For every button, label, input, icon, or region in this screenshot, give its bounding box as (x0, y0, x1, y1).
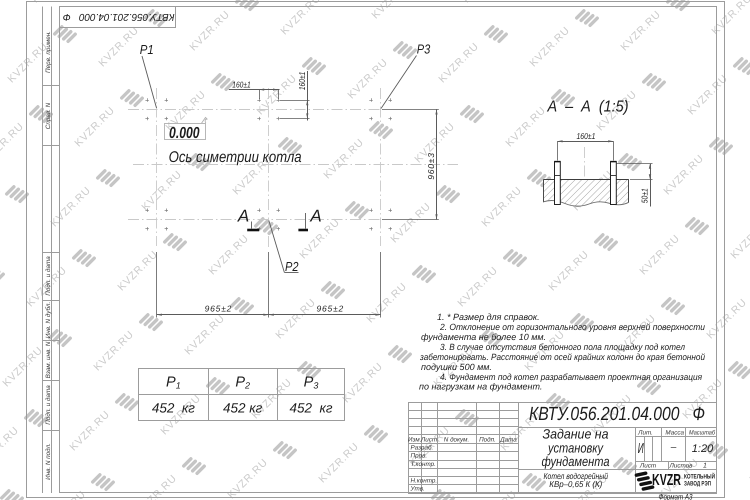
svg-text:Подп. и дата: Подп. и дата (45, 385, 52, 425)
svg-text:Изм.: Изм. (408, 437, 421, 444)
svg-text:КОТЕЛЬНЫЙ: КОТЕЛЬНЫЙ (684, 473, 715, 481)
svg-text:Т.контр.: Т.контр. (411, 461, 436, 468)
svg-text:А – А (1:5): А – А (1:5) (547, 99, 629, 116)
svg-text:Масштаб: Масштаб (689, 430, 715, 437)
svg-text:P3: P3 (304, 375, 319, 391)
svg-text:1:20: 1:20 (692, 443, 714, 455)
svg-text:Формат А3: Формат А3 (659, 492, 693, 500)
svg-text:фундамента: фундамента (542, 454, 610, 469)
svg-text:KVZR.RU: KVZR.RU (206, 232, 251, 277)
svg-text:KVZR.RU: KVZR.RU (728, 216, 750, 261)
svg-text:Масса: Масса (665, 430, 684, 437)
svg-text:KVZR.RU: KVZR.RU (5, 40, 50, 85)
svg-text:160±1: 160±1 (577, 131, 596, 141)
svg-text:KVZR.RU: KVZR.RU (91, 328, 136, 373)
svg-text:P1: P1 (140, 42, 154, 57)
svg-text:KVZR.RU: KVZR.RU (455, 264, 500, 309)
svg-text:по нагрузкам на фундамент.: по нагрузкам на фундамент. (419, 382, 542, 392)
svg-text:Лит.: Лит. (637, 430, 653, 437)
svg-text:Инв. N подл.: Инв. N подл. (45, 443, 52, 480)
svg-text:Листов: Листов (669, 463, 694, 470)
svg-text:N докум.: N докум. (444, 437, 469, 444)
svg-text:KVZR.RU: KVZR.RU (685, 72, 730, 117)
svg-text:4. Фундамент под котел разраба: 4. Фундамент под котел разрабатывает про… (440, 372, 702, 382)
svg-text:3. В случае отсутствия бетонно: 3. В случае отсутствия бетонного пола пл… (440, 342, 685, 352)
svg-text:KVZR.RU: KVZR.RU (254, 72, 299, 117)
svg-text:KVZR.RU: KVZR.RU (388, 200, 433, 245)
svg-text:Подп.: Подп. (479, 437, 496, 444)
svg-text:KVZR.RU: KVZR.RU (637, 232, 682, 277)
svg-text:KVZR.RU: KVZR.RU (527, 24, 572, 69)
svg-text:A: A (309, 206, 321, 225)
svg-text:965±2: 965±2 (317, 303, 345, 313)
svg-text:KVZR.RU: KVZR.RU (278, 0, 323, 37)
svg-text:Разраб.: Разраб. (411, 445, 434, 452)
svg-text:960±3: 960±3 (426, 152, 436, 180)
svg-text:Лист: Лист (420, 437, 437, 444)
svg-text:KVZR.RU: KVZR.RU (474, 488, 519, 500)
svg-text:Дата: Дата (499, 437, 517, 444)
svg-text:KVZR.RU: KVZR.RU (115, 248, 160, 293)
svg-text:KVZR.RU: KVZR.RU (340, 360, 385, 405)
svg-text:KVZR.RU: KVZR.RU (225, 456, 270, 500)
svg-text:452 кг: 452 кг (289, 401, 332, 416)
svg-text:160±1: 160±1 (297, 71, 307, 90)
svg-text:KVZR.RU: KVZR.RU (364, 280, 409, 325)
svg-text:Справ. N: Справ. N (45, 102, 52, 129)
svg-text:P2: P2 (235, 375, 250, 391)
svg-text:KVZR.RU: KVZR.RU (618, 8, 663, 53)
svg-text:KVZR.RU: KVZR.RU (139, 168, 184, 213)
svg-text:Задание на: Задание на (543, 427, 609, 442)
svg-text:2. Отклонение от горизонтально: 2. Отклонение от горизонтального уровня … (439, 322, 705, 332)
svg-text:KVZR.RU: KVZR.RU (43, 488, 88, 500)
svg-text:KVZR: KVZR (652, 472, 681, 489)
svg-text:KVZR.RU: KVZR.RU (29, 0, 74, 5)
svg-text:Подп. и дата: Подп. и дата (45, 256, 52, 296)
svg-text:1. * Размер для справок.: 1. * Размер для справок. (437, 312, 540, 322)
svg-text:KVZR.RU: KVZR.RU (187, 8, 232, 53)
svg-text:1: 1 (703, 463, 707, 470)
svg-text:A: A (237, 206, 249, 225)
svg-text:KVZR.RU: KVZR.RU (273, 296, 318, 341)
svg-text:KVZR.RU: KVZR.RU (709, 0, 750, 37)
svg-text:ЗАВОД РЭП: ЗАВОД РЭП (684, 481, 711, 488)
svg-text:Ось симетрии котла: Ось симетрии котла (169, 149, 302, 166)
svg-text:KVZR.RU: KVZR.RU (460, 0, 505, 5)
svg-text:KVZR.RU: KVZR.RU (72, 104, 117, 149)
svg-text:КВТУ.056.201.04.000 Ф: КВТУ.056.201.04.000 Ф (63, 11, 175, 22)
svg-text:Инв. N дубл.: Инв. N дубл. (45, 302, 52, 338)
svg-text:–: – (670, 442, 677, 453)
svg-text:фундамента не более 10 мм.: фундамента не более 10 мм. (421, 332, 546, 342)
svg-text:KVZR.RU: KVZR.RU (0, 120, 26, 165)
svg-text:KVZR.RU: KVZR.RU (369, 0, 414, 21)
svg-text:KVZR.RU: KVZR.RU (345, 56, 390, 101)
svg-text:Н.контр.: Н.контр. (411, 478, 438, 485)
svg-text:452 кг: 452 кг (223, 401, 263, 416)
svg-text:P2: P2 (285, 259, 299, 274)
svg-text:KVZR.RU: KVZR.RU (96, 24, 141, 69)
svg-text:KVZR.RU: KVZR.RU (0, 344, 45, 389)
svg-text:KVZR.RU: KVZR.RU (546, 248, 591, 293)
svg-text:P3: P3 (417, 42, 431, 57)
svg-text:452 кг: 452 кг (152, 401, 195, 416)
svg-text:KVZR.RU: KVZR.RU (67, 408, 112, 453)
svg-text:50±1: 50±1 (640, 188, 650, 203)
svg-text:Лист: Лист (639, 463, 656, 470)
svg-text:0.000: 0.000 (169, 125, 200, 142)
svg-text:Перв. примен.: Перв. примен. (45, 31, 52, 73)
svg-text:Взам. инв. N: Взам. инв. N (45, 341, 52, 378)
svg-text:KVZR.RU: KVZR.RU (0, 200, 2, 245)
svg-text:KVZR.RU: KVZR.RU (316, 440, 361, 485)
svg-text:КВр–0,65 К (К): КВр–0,65 К (К) (549, 479, 602, 489)
svg-text:подушки 500 мм.: подушки 500 мм. (421, 362, 492, 372)
svg-text:KVZR.RU: KVZR.RU (503, 104, 548, 149)
svg-text:965±2: 965±2 (205, 303, 233, 313)
svg-text:KVZR.RU: KVZR.RU (134, 472, 179, 500)
svg-text:KVZR.RU: KVZR.RU (704, 296, 749, 341)
svg-text:KVZR.RU: KVZR.RU (0, 424, 21, 469)
svg-text:KVZR.RU: KVZR.RU (436, 40, 481, 85)
svg-text:КВТУ.056.201.04.000 Ф: КВТУ.056.201.04.000 Ф (529, 404, 705, 425)
svg-text:KVZR.RU: KVZR.RU (479, 184, 524, 229)
svg-text:Утв.: Утв. (410, 486, 425, 493)
svg-text:160±1: 160±1 (232, 79, 251, 89)
svg-text:KVZR.RU: KVZR.RU (321, 136, 366, 181)
svg-text:KVZR.RU: KVZR.RU (661, 152, 706, 197)
svg-text:KVZR.RU: KVZR.RU (48, 184, 93, 229)
svg-text:забетонировать. Расстояние от: забетонировать. Расстояние от осей крайн… (419, 352, 705, 362)
svg-text:И: И (638, 441, 644, 457)
svg-text:P1: P1 (166, 375, 181, 391)
svg-text:KVZR.RU: KVZR.RU (182, 312, 227, 357)
svg-text:Пров.: Пров. (411, 453, 428, 460)
